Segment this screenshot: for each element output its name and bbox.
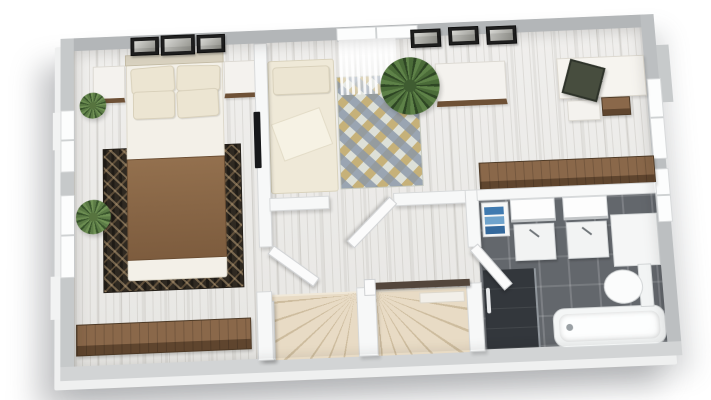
wall-hall-north-left [269,196,329,212]
door-to-master-bedroom [268,245,320,287]
stair-divider-wall [356,287,379,357]
pillow [133,90,175,120]
blue-towel [485,226,505,235]
window-sill-left-upper [53,113,61,151]
window-sill-left [51,276,61,320]
duvet-fold [271,107,333,162]
floorplan-render [0,0,711,400]
building-outline [60,14,682,381]
potted-plant-corner [80,92,107,119]
wall-art-frame [410,28,441,48]
printer-unit [567,99,601,121]
wall-art-frame [197,34,226,53]
wall-art-frame [448,26,479,46]
stair-landing-strip [419,291,465,304]
plan-rotation-wrapper [52,7,675,379]
mirror-right [562,196,608,221]
faucet [529,229,540,238]
brown-blanket [127,155,227,261]
newel-post [364,279,376,296]
double-bed [126,54,228,281]
nightstand-right [224,60,257,98]
low-wood-sideboard [76,317,252,356]
wall-stairwell-left [256,291,274,361]
bathtub [552,304,667,348]
blue-towel [484,207,504,215]
wall-art-frame [161,34,195,56]
dresser [435,61,508,107]
window-left-lower [60,195,75,279]
vanity-sink-left [513,223,556,261]
drawer-unit [601,96,631,116]
pillow [272,65,330,95]
faucet [582,227,593,236]
stairs-left-flight [270,291,359,360]
window-left-upper [60,110,74,173]
wall-hall-north-right [393,190,469,207]
wood-grain [77,319,251,356]
floor-plane [74,27,668,366]
blue-towel [485,216,505,225]
tall-cabinet [610,213,661,267]
tub-drain [566,324,573,331]
plan-perspective-wrapper [60,14,682,381]
toilet [602,265,654,306]
wall-art-frame [130,37,159,56]
door-to-second-bedroom [347,197,398,249]
walk-in-shower [483,268,541,349]
wall-art-frame [486,25,517,45]
mirror-left [510,198,556,223]
towel-shelf [481,202,510,238]
pillow [176,88,219,119]
single-bed [267,59,338,195]
vanity-sink-right [566,221,610,259]
